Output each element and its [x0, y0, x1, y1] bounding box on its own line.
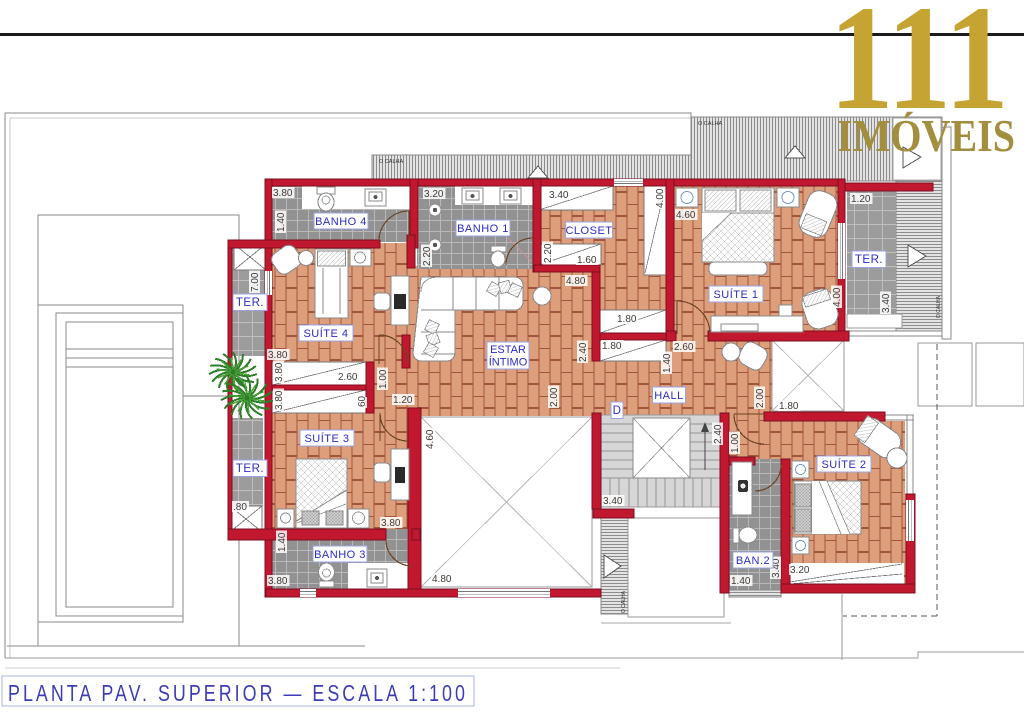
svg-text:1.80: 1.80 — [617, 314, 637, 325]
svg-text:HALL: HALL — [654, 390, 684, 402]
svg-text:3.80: 3.80 — [268, 350, 288, 361]
svg-text:3.40: 3.40 — [549, 190, 569, 201]
svg-text:BAN.2: BAN.2 — [736, 555, 770, 567]
svg-text:2.60: 2.60 — [674, 342, 694, 353]
svg-text:1.00: 1.00 — [730, 433, 741, 453]
svg-text:O CALHA: O CALHA — [936, 295, 942, 318]
svg-text:2.40: 2.40 — [713, 424, 724, 444]
svg-text:TER.: TER. — [236, 297, 264, 309]
svg-text:IMÓVEIS: IMÓVEIS — [837, 110, 1015, 161]
svg-text:7.00: 7.00 — [250, 272, 261, 292]
svg-text:1.80: 1.80 — [602, 341, 622, 352]
svg-text:3.80: 3.80 — [381, 518, 401, 529]
svg-text:4.00: 4.00 — [655, 188, 666, 208]
svg-text:4.60: 4.60 — [676, 210, 696, 221]
svg-text:TER.: TER. — [855, 254, 883, 266]
svg-text:BANHO 3: BANHO 3 — [314, 549, 366, 561]
svg-text:1.40: 1.40 — [276, 212, 287, 232]
svg-text:60: 60 — [357, 395, 368, 407]
svg-text:2.00: 2.00 — [755, 388, 766, 408]
svg-text:1.20: 1.20 — [851, 194, 871, 205]
svg-text:TER.: TER. — [236, 463, 264, 475]
svg-text:CLOSET: CLOSET — [565, 225, 612, 237]
svg-text:4.00: 4.00 — [832, 287, 843, 307]
svg-text:3.80: 3.80 — [268, 576, 288, 587]
svg-text:BANHO 4: BANHO 4 — [315, 216, 367, 228]
svg-text:2.20: 2.20 — [422, 246, 433, 266]
svg-text:1.00: 1.00 — [378, 369, 389, 389]
svg-text:1.40: 1.40 — [662, 353, 673, 373]
svg-text:1.60: 1.60 — [577, 255, 597, 266]
svg-text:1.40: 1.40 — [731, 576, 751, 587]
svg-text:3.80: 3.80 — [273, 188, 293, 199]
svg-text:SUÍTE 4: SUÍTE 4 — [303, 327, 348, 340]
svg-text:2.40: 2.40 — [578, 342, 589, 362]
svg-text:3.40: 3.40 — [881, 293, 892, 313]
svg-text:3.20: 3.20 — [424, 189, 444, 200]
svg-text:D: D — [613, 405, 622, 417]
svg-text:2.60: 2.60 — [338, 372, 358, 383]
svg-text:1.80: 1.80 — [779, 401, 799, 412]
svg-text:ÍNTIMO: ÍNTIMO — [489, 356, 528, 369]
svg-text:3.20: 3.20 — [790, 565, 810, 576]
svg-text:SUÍTE 1: SUÍTE 1 — [713, 288, 758, 301]
svg-text:1.40: 1.40 — [277, 532, 288, 552]
svg-text:SUÍTE 3: SUÍTE 3 — [304, 432, 349, 445]
svg-text:2.00: 2.00 — [549, 387, 560, 407]
svg-text:4.80: 4.80 — [566, 276, 586, 287]
svg-text:4.80: 4.80 — [432, 574, 452, 585]
svg-text:O CALHA: O CALHA — [698, 121, 722, 127]
svg-text:3.80: 3.80 — [274, 362, 285, 382]
svg-text:ESTAR: ESTAR — [490, 344, 526, 356]
svg-text:1.20: 1.20 — [393, 395, 413, 406]
svg-text:O CALHA: O CALHA — [621, 590, 627, 613]
svg-text:PLANTA PAV. SUPERIOR — ESC: PLANTA PAV. SUPERIOR — ESCALA 1:100 — [8, 680, 468, 706]
svg-text:SUÍTE 2: SUÍTE 2 — [821, 458, 866, 471]
svg-text:3.80: 3.80 — [274, 390, 285, 410]
svg-text:3.40: 3.40 — [603, 496, 623, 507]
svg-text:2.20: 2.20 — [543, 243, 554, 263]
svg-text:4.60: 4.60 — [425, 429, 436, 449]
svg-text:O CALHA: O CALHA — [379, 159, 403, 165]
svg-text:.80: .80 — [233, 502, 247, 513]
svg-text:BANHO 1: BANHO 1 — [457, 223, 509, 235]
